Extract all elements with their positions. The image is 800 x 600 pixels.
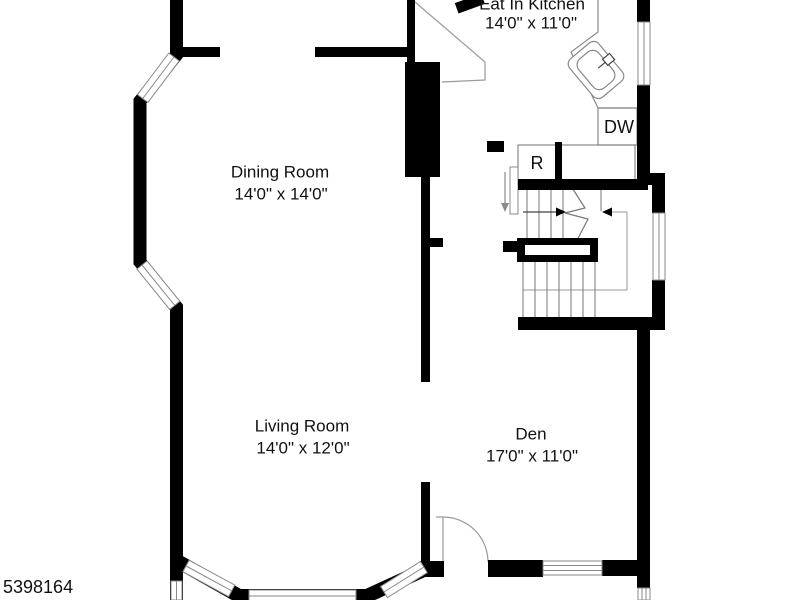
room-dims-dining: 14'0" x 14'0"	[234, 183, 327, 204]
room-label-living: Living Room	[255, 415, 350, 436]
walls	[140, 0, 665, 600]
range-label: R	[531, 152, 544, 175]
listing-id: 5398164	[3, 577, 73, 598]
room-label-dining: Dining Room	[231, 161, 329, 182]
hall-door-leaf	[510, 167, 518, 214]
room-dims-kitchen: 14'0" x 11'0"	[485, 12, 577, 33]
window-kitchen-east	[638, 22, 650, 85]
window-stair-east	[653, 213, 665, 280]
bay-window-bottom-left	[183, 560, 235, 596]
room-label-den: Den	[515, 423, 546, 444]
window-den-south	[543, 561, 602, 575]
dishwasher-label: DW	[604, 116, 634, 139]
floorplan: Eat In Kitchen 14'0" x 11'0" Dining Room…	[0, 0, 800, 600]
chimney	[405, 62, 440, 177]
kitchen-sink-icon	[565, 37, 628, 101]
floorplan-drawing	[0, 0, 800, 600]
bay-window-lower-left	[137, 261, 180, 310]
windows	[137, 22, 665, 600]
window-left-bottom	[171, 581, 182, 600]
bay-window-upper-left	[138, 53, 180, 102]
window-den-southeast	[638, 588, 650, 600]
den-door-swing-icon	[443, 517, 488, 562]
room-dims-den: 17'0" x 11'0"	[486, 445, 578, 466]
counter-box	[557, 145, 635, 180]
stair-break-line	[565, 183, 588, 246]
room-dims-living: 14'0" x 12'0"	[256, 437, 349, 458]
bay-window-bottom-center	[249, 590, 356, 600]
